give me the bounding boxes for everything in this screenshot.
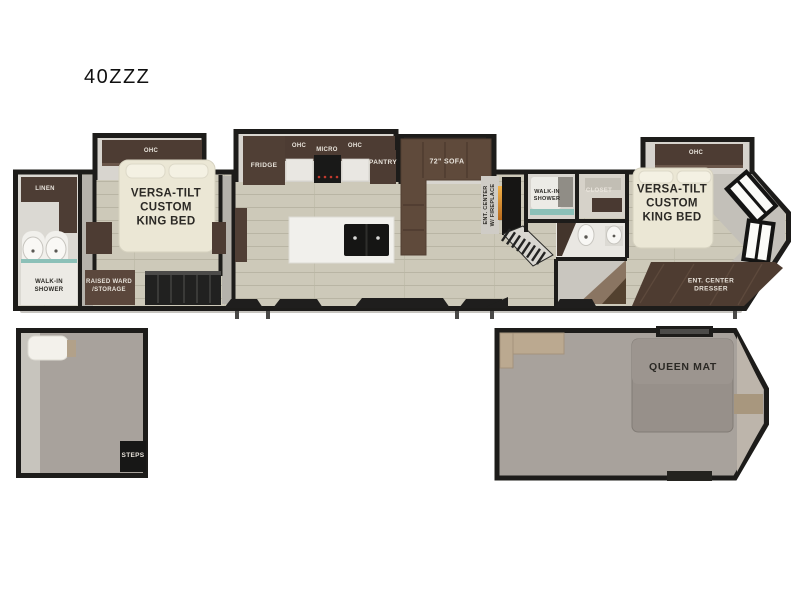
- toilet: [578, 225, 594, 246]
- front-loft: [19, 331, 147, 476]
- loft-hatch-bottom: [667, 471, 712, 481]
- pillow: [169, 164, 208, 178]
- nightstand-left: [86, 222, 112, 254]
- side-cabinet: [235, 208, 247, 262]
- shower-wall: [558, 177, 573, 207]
- loft-bench: [28, 336, 68, 360]
- sink-left: [23, 237, 43, 261]
- floorplan-drawing: [0, 0, 800, 600]
- pillow: [126, 164, 165, 178]
- fridge: [243, 136, 285, 185]
- pillow: [677, 171, 711, 183]
- front-bathroom: [18, 175, 78, 306]
- loft-wood-ledge: [734, 394, 763, 414]
- counter-left: [286, 159, 313, 181]
- closet-rod: [592, 198, 622, 212]
- closet-shelf: [585, 178, 621, 190]
- loft-railing-vertical: [500, 333, 513, 368]
- linen-cabinet: [21, 177, 59, 202]
- rear-shower-pan: [531, 177, 561, 209]
- pantry-cabinet: [370, 150, 396, 184]
- counter-right: [342, 159, 369, 181]
- sink-right: [46, 237, 66, 261]
- rear-window-lower: [741, 218, 776, 265]
- ent-center-label-area: [481, 176, 499, 234]
- loft-steps-box: [120, 441, 146, 472]
- front-shower-pan: [21, 262, 77, 305]
- rear-bedroom: [632, 144, 785, 306]
- nightstand-right: [212, 222, 226, 254]
- floorplan-page: 40ZZZ: [0, 0, 800, 600]
- shower-glass: [21, 259, 77, 263]
- mattress-highlight: [632, 339, 733, 384]
- ent-center-unit: [502, 177, 521, 235]
- cooktop: [314, 155, 341, 183]
- pillow: [639, 171, 673, 183]
- front-bedroom: [85, 140, 226, 305]
- rear-bedroom-ohc-cabinet: [655, 144, 743, 165]
- main-floorplan: [16, 132, 789, 320]
- ent-center-dresser: [632, 262, 783, 306]
- shower-glass-rear: [530, 209, 574, 215]
- raised-wardrobe: [85, 270, 135, 305]
- bench-arm: [67, 340, 76, 357]
- bath-cabinet: [59, 177, 77, 233]
- rear-loft: [497, 326, 767, 481]
